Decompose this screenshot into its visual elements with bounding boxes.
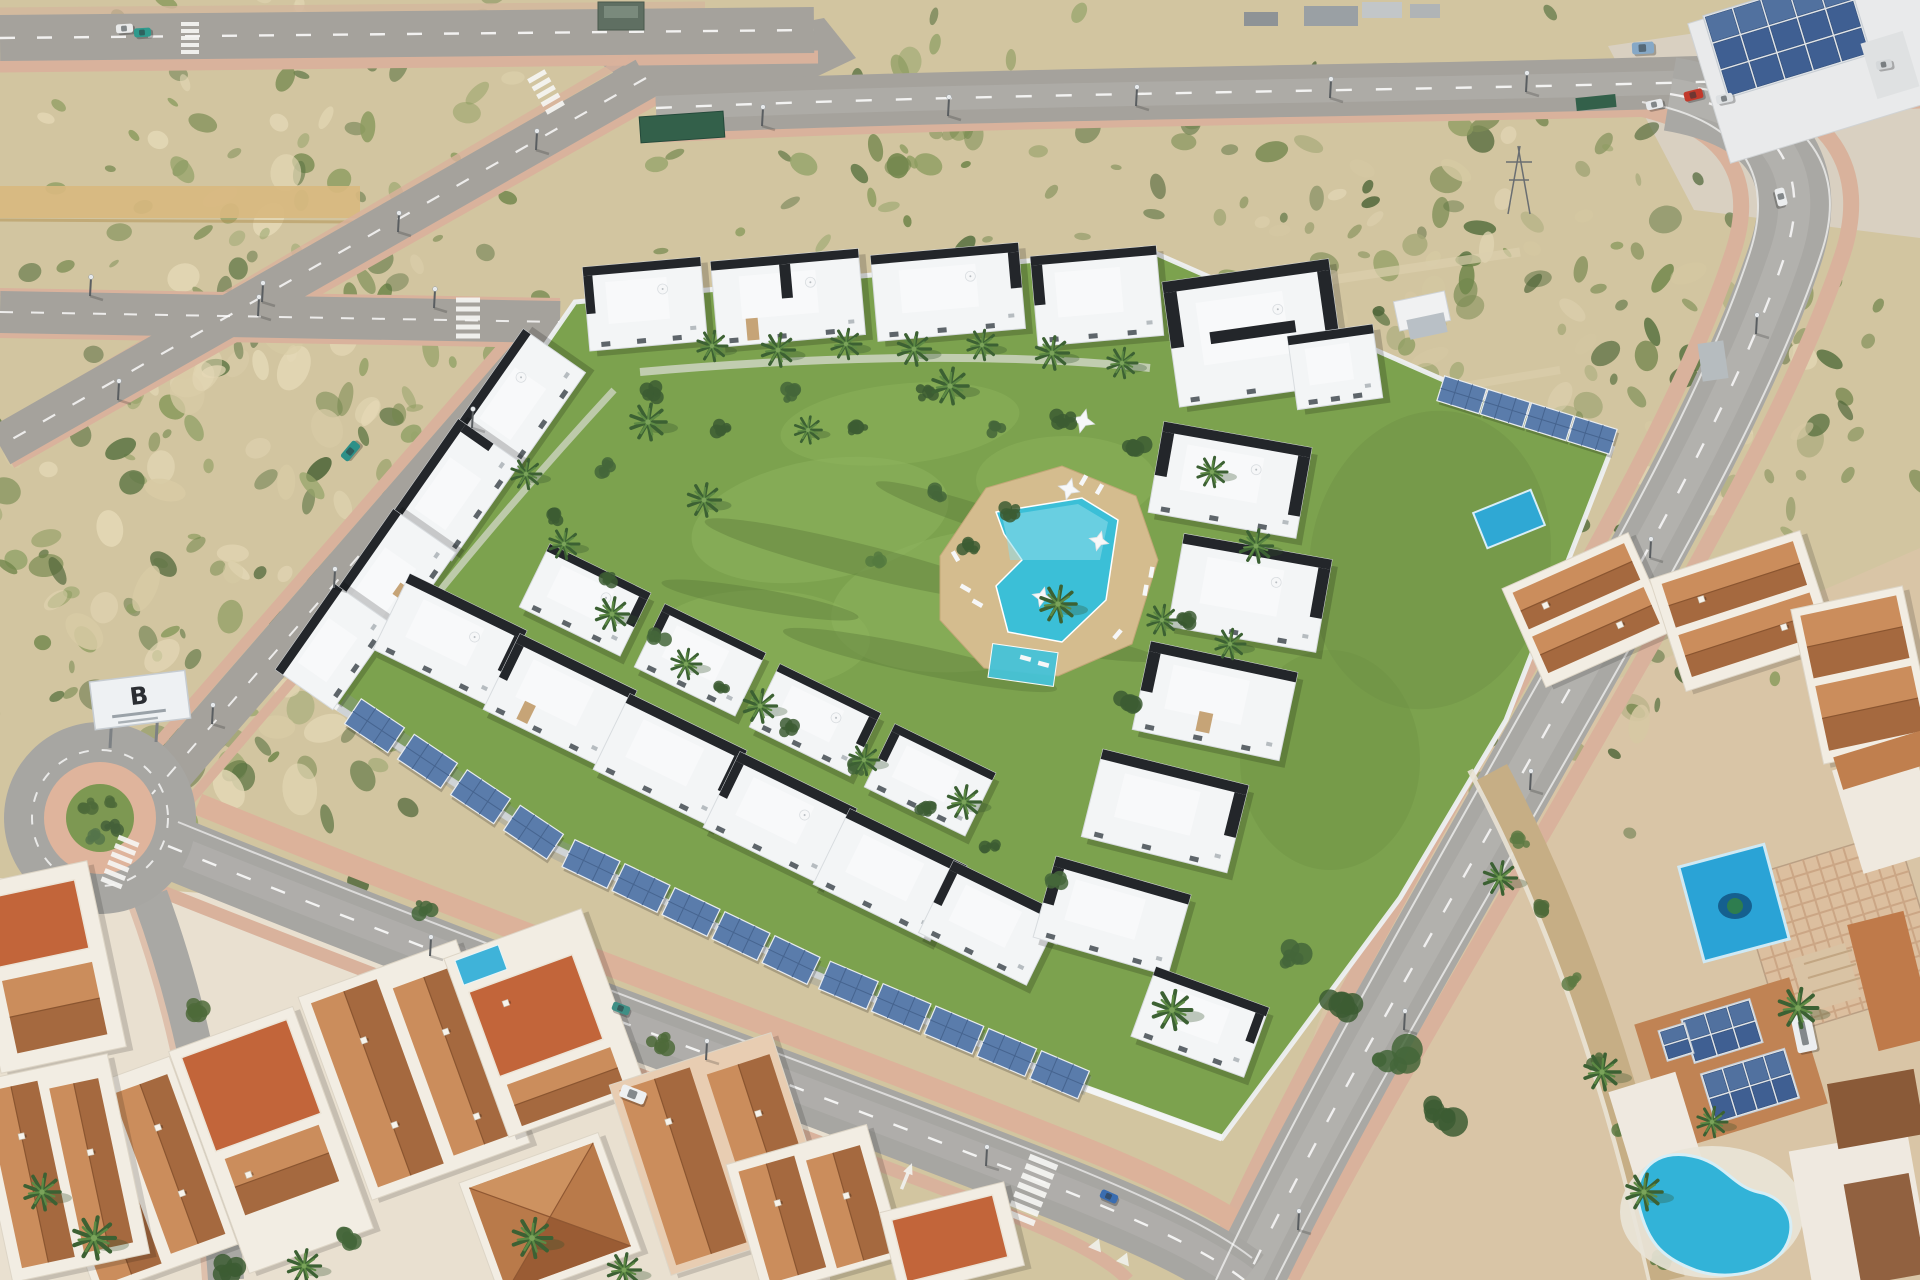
- mh: [1030, 245, 1171, 352]
- car: [134, 27, 154, 39]
- sign-panel: [1697, 340, 1728, 381]
- bush: [1533, 899, 1549, 918]
- car: [116, 23, 136, 35]
- aerial-development-render: B: [0, 0, 1920, 1280]
- storage-yard: [1410, 4, 1440, 18]
- tan-wall: [0, 186, 360, 218]
- van: [1632, 41, 1657, 56]
- storage-yard: [1362, 2, 1402, 18]
- mh: [583, 256, 715, 357]
- storage-yard: [1244, 12, 1278, 26]
- mh: [871, 242, 1033, 347]
- storage-yard: [1304, 6, 1358, 26]
- mh: [1287, 323, 1390, 415]
- circle: [1727, 898, 1743, 914]
- line: [0, 220, 358, 222]
- rect: [604, 6, 638, 18]
- billboard-logo: B: [128, 681, 150, 711]
- road-sign-green: [639, 111, 725, 143]
- svg-text:B: B: [128, 681, 150, 711]
- aerial-photo-canvas: B: [0, 0, 1920, 1280]
